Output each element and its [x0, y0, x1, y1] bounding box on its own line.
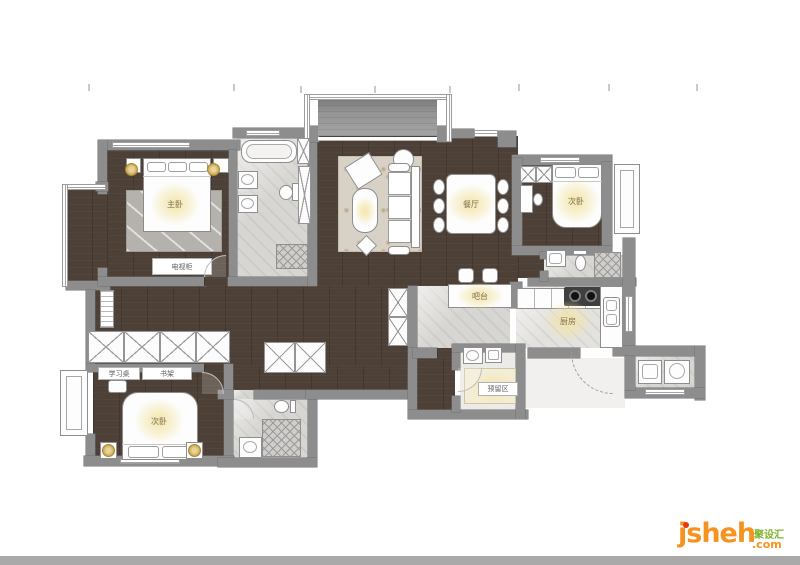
room-label-bar: 吧台 — [456, 282, 504, 310]
sofa-back — [411, 166, 420, 248]
desk-chair — [108, 380, 127, 393]
tv-cabinet-label: 电视柜 — [152, 258, 212, 275]
sofa-cushion — [388, 196, 411, 219]
bar-stool — [458, 268, 474, 283]
coffee-table-glow — [354, 196, 376, 226]
linen-closet — [298, 166, 311, 224]
sink-basin — [241, 198, 254, 209]
room-label-dining: 餐厅 — [446, 184, 496, 224]
wall-segment — [625, 356, 635, 390]
wall-segment — [224, 364, 233, 466]
bar-stool — [482, 268, 498, 283]
wall-segment — [623, 238, 635, 350]
hall-wardrobe — [160, 331, 196, 363]
sofa-armrest — [388, 246, 410, 255]
toilet-bowl — [575, 255, 586, 271]
plant-decor — [207, 163, 220, 176]
door-opening — [204, 364, 224, 372]
plant-decor — [188, 444, 201, 457]
pillow — [147, 162, 166, 172]
linen-closet — [297, 138, 310, 164]
bay-window-inner — [66, 376, 82, 430]
wall-segment — [228, 277, 316, 286]
pillow — [128, 446, 159, 458]
wall-segment — [306, 390, 412, 399]
plant-decor — [125, 163, 138, 176]
sink-basin — [606, 300, 617, 311]
hall-wardrobe — [196, 331, 230, 363]
door-opening — [204, 277, 228, 286]
reserved-label: 预留区 — [478, 382, 518, 396]
dining-chair — [433, 217, 445, 233]
window-strip — [62, 184, 106, 190]
dining-chair — [433, 179, 445, 195]
wall-segment — [408, 286, 417, 350]
window-strip — [474, 130, 498, 137]
pillow — [578, 167, 599, 178]
bay-curtain — [318, 100, 437, 136]
shower-area — [276, 244, 308, 269]
shoe-cabinet — [100, 290, 114, 328]
dimension-tick — [233, 84, 235, 91]
pillow — [555, 167, 576, 178]
window-strip — [645, 389, 685, 395]
dimension-tick — [518, 84, 520, 91]
door-opening — [437, 348, 452, 358]
hall-wardrobe — [295, 342, 326, 373]
dining-chair — [497, 217, 509, 233]
wall-segment — [613, 346, 705, 356]
wall-segment — [602, 162, 612, 250]
dimension-tick — [300, 86, 302, 93]
toilet-bowl — [274, 400, 289, 413]
desk — [520, 185, 533, 213]
washer-drum — [642, 364, 658, 379]
room-label-bedroom3: 次卧 — [134, 398, 184, 444]
logo-brand-text: jsheh — [678, 518, 755, 549]
wall-segment — [308, 390, 317, 466]
wall-segment — [413, 348, 437, 358]
sofa-armrest — [388, 163, 410, 172]
dimension-tick — [374, 86, 376, 93]
bathtub-basin — [246, 144, 292, 159]
hall-wardrobe — [388, 288, 408, 317]
window-strip — [540, 157, 580, 163]
toilet-bowl — [279, 185, 293, 200]
wall-segment — [229, 150, 237, 277]
footer-bar — [0, 556, 800, 565]
plant-decor — [102, 444, 115, 457]
dimension-tick — [88, 84, 90, 91]
door-opening — [234, 390, 254, 399]
sink-basin — [488, 350, 499, 360]
room-label-master-bedroom: 主卧 — [150, 182, 200, 226]
bay-sill — [318, 137, 437, 141]
hall-wardrobe — [388, 317, 408, 346]
watermark-logo: jsheh 聚设汇 .com — [676, 520, 798, 556]
wall-segment — [498, 131, 516, 147]
sink-basin — [549, 253, 562, 264]
sofa-cushion — [388, 220, 411, 243]
sofa-cushion — [388, 172, 411, 195]
toilet-tank — [290, 400, 296, 413]
wardrobe — [520, 166, 536, 183]
sink-basin — [243, 441, 257, 453]
desk-label: 学习桌 — [98, 367, 140, 380]
logo-red-dot — [683, 522, 689, 528]
hall-wardrobe — [88, 331, 124, 363]
wall-segment — [452, 396, 460, 412]
bookshelf-label: 书架 — [142, 367, 192, 380]
sink-basin — [669, 363, 685, 379]
room-label-kitchen: 厨房 — [544, 300, 592, 342]
pillow — [168, 162, 187, 172]
window-strip — [62, 184, 68, 287]
dimension-tick — [449, 86, 451, 93]
window-strip — [446, 94, 452, 142]
sink-basin — [241, 174, 254, 185]
wardrobe — [536, 166, 552, 183]
wall-segment — [540, 271, 548, 281]
wall-segment — [408, 410, 528, 419]
pillow — [189, 162, 208, 172]
bay-window-inner — [620, 170, 634, 228]
dimension-tick — [608, 84, 610, 91]
dining-chair — [497, 179, 509, 195]
stove-burner — [585, 290, 597, 302]
sink-basin — [606, 314, 617, 325]
washer-drum — [466, 350, 479, 361]
hall-wardrobe — [124, 331, 160, 363]
shower-area — [262, 419, 301, 457]
floor-plan-canvas: 主卧 电视柜 餐厅 次卧 厨房 — [0, 0, 800, 565]
utility-passage-floor — [417, 352, 455, 410]
room-label-bedroom2: 次卧 — [552, 178, 600, 224]
dining-chair — [497, 198, 509, 214]
hall-wardrobe — [264, 342, 295, 373]
window-strip — [246, 130, 280, 136]
window-strip — [304, 94, 310, 142]
wall-segment — [218, 458, 317, 467]
bed-seam — [143, 176, 211, 177]
logo-tld-text: .com — [752, 538, 782, 551]
shower-area — [594, 252, 621, 278]
desk-chair — [533, 193, 543, 206]
window-strip — [112, 142, 190, 148]
dimension-tick — [696, 84, 698, 91]
dining-chair — [433, 198, 445, 214]
window-strip — [625, 296, 633, 332]
wall-segment — [98, 277, 206, 286]
